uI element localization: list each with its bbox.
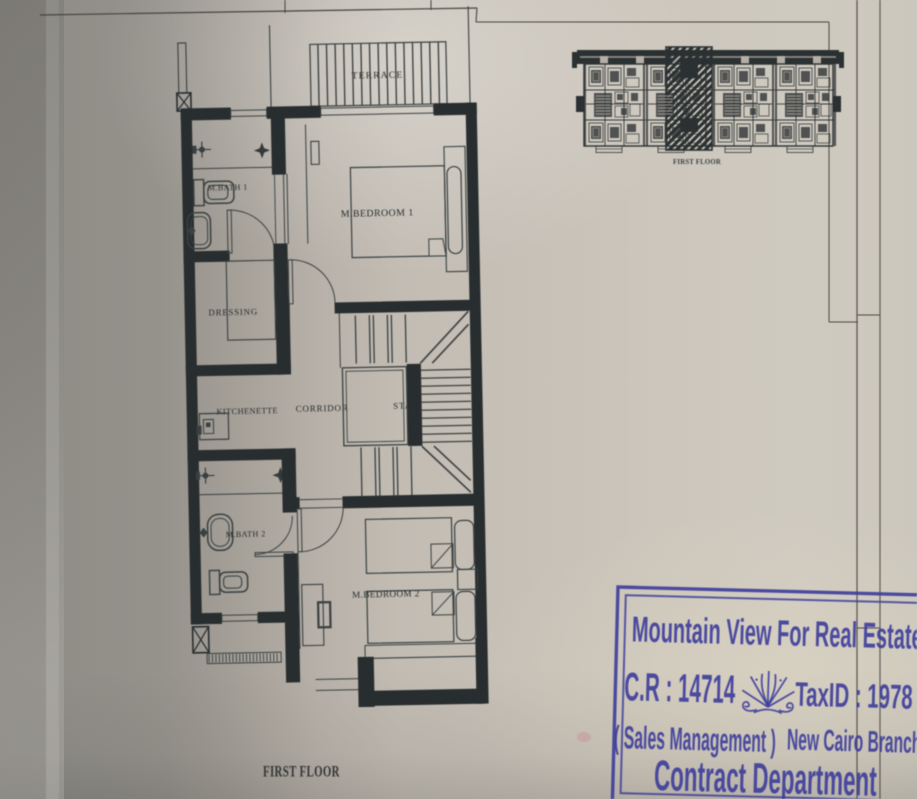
svg-text:KITCHENETTE: KITCHENETTE <box>216 406 278 416</box>
svg-text:DRESSING: DRESSING <box>208 307 258 318</box>
svg-text:New Cairo Branch: New Cairo Branch <box>787 723 917 760</box>
svg-text:M.BATH 2: M.BATH 2 <box>226 529 266 539</box>
svg-text:TaxID : 1978: TaxID : 1978 <box>795 675 913 716</box>
svg-text:M.BEDROOM 1: M.BEDROOM 1 <box>341 207 414 219</box>
svg-text:CORRIDOR: CORRIDOR <box>296 403 349 414</box>
svg-text:Contract Department: Contract Department <box>653 752 877 799</box>
svg-text:FIRST FLOOR: FIRST FLOOR <box>263 763 340 780</box>
svg-text:M.BATH 1: M.BATH 1 <box>208 183 248 193</box>
svg-text:FIRST FLOOR: FIRST FLOOR <box>673 159 721 166</box>
svg-text:TERRACE: TERRACE <box>352 71 404 82</box>
svg-text:Mountain View For Real Estate: Mountain View For Real Estate <box>631 610 917 657</box>
svg-text:M.BEDROOM 2: M.BEDROOM 2 <box>352 588 420 599</box>
svg-text:C.R : 14714: C.R : 14714 <box>624 664 736 712</box>
